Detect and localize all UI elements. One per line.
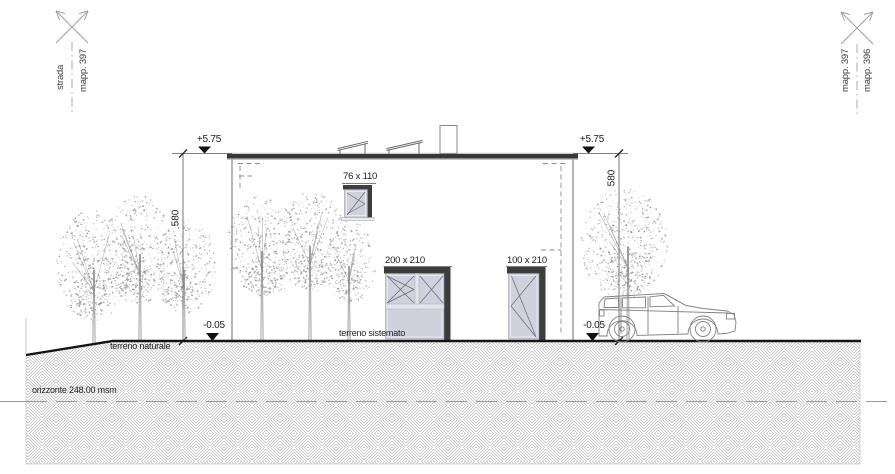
door-label: 100 x 210	[507, 256, 547, 266]
height-dim-right: 580	[607, 170, 618, 187]
boundary-label-mapp397-left: mapp. 397	[78, 49, 89, 92]
terrain-natural-label: terreno naturale	[110, 342, 170, 351]
height-dim-left: 580	[171, 210, 182, 227]
terrain-arranged-label: terreno sistemato	[339, 329, 405, 338]
horizon-label: orizzonte 248.00 msm	[32, 386, 117, 395]
boundary-label-strada: strada	[55, 65, 66, 90]
boundary-label-mapp397-right: mapp. 397	[840, 49, 851, 92]
entry-door	[506, 267, 547, 341]
tree-sketch	[104, 196, 173, 341]
solar-panel	[338, 141, 369, 154]
small-window-label: 76 x 110	[343, 172, 377, 182]
ground-level-right: -0.05	[583, 321, 605, 332]
solar-panel	[387, 140, 423, 154]
car-side-view	[599, 294, 736, 343]
elevation-linework	[0, 0, 895, 474]
elevation-drawing-canvas: strada mapp. 397 mapp. 397 mapp. 396 +5.…	[0, 0, 895, 474]
tree-sketch	[56, 210, 128, 344]
tree-sketch	[581, 189, 669, 341]
small-window	[341, 184, 376, 221]
roof-level-right: +5.75	[580, 135, 604, 146]
boundary-label-mapp396: mapp. 396	[862, 49, 873, 92]
roof-level-left: +5.75	[197, 135, 221, 146]
ground-level-left: -0.05	[203, 321, 225, 332]
roof	[227, 126, 578, 160]
large-window-label: 200 x 210	[385, 256, 425, 266]
